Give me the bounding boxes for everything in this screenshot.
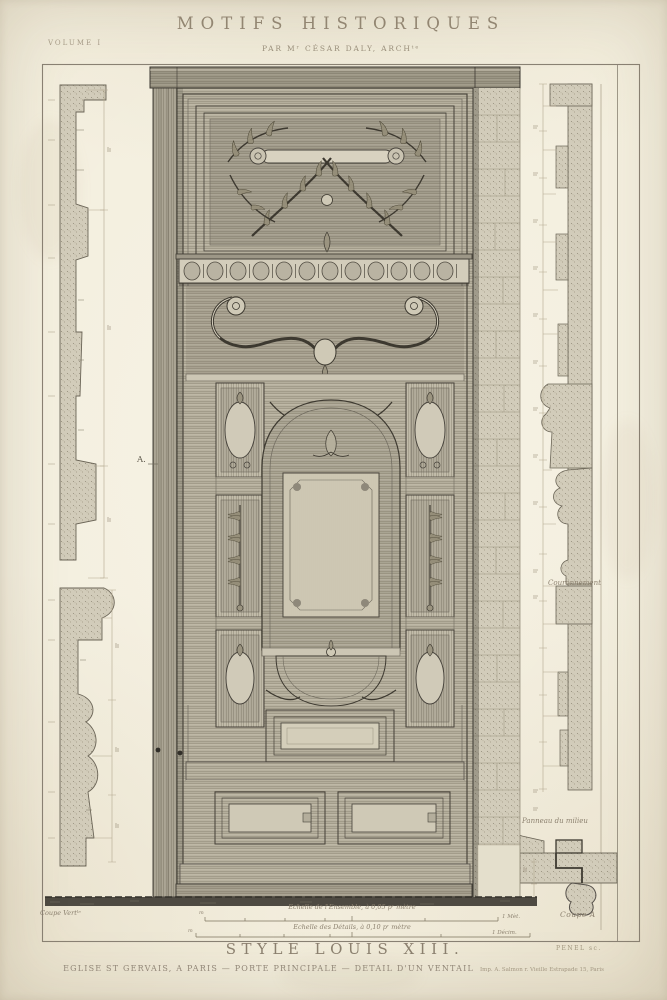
- right-dimension-figures: [533, 126, 538, 810]
- door-plinth: [176, 864, 472, 897]
- style-title: STYLE LOUIS XIII.: [226, 942, 464, 957]
- lower-horizontal-panel: [266, 710, 394, 762]
- left-tick-column: [48, 100, 55, 838]
- scale-ensemble-label: Echelle de l'Ensemble, à 0,05 pʳ mètre: [288, 904, 415, 911]
- right-ornament-column: [406, 383, 454, 727]
- plate-engraving: [0, 0, 667, 1000]
- central-arched-panel: [262, 400, 400, 650]
- scale-details-label: Echelle des Détails, à 0,10 pʳ mètre: [293, 924, 411, 931]
- coupe-a-label: Coupe A: [560, 911, 596, 919]
- left-ornament-column: [216, 383, 264, 727]
- right-section-profile: [533, 84, 601, 930]
- plate-caption-row: EGLISE ST GERVAIS, A PARIS — PORTE PRINC…: [0, 964, 667, 973]
- left-dimension-figures: [108, 147, 118, 828]
- egg-and-dart-shelf: [176, 254, 472, 286]
- lock-rail: [186, 762, 464, 780]
- coupe-verticale-label: Coupe Vertˡᵉ: [40, 910, 81, 917]
- scale-ensemble-mark: 1 Mèt.: [502, 915, 520, 921]
- top-carved-panel: [196, 106, 454, 258]
- middle-field: [186, 381, 464, 727]
- engraved-plate-page: { "colors": { "paper": "#f3eedd", "ink":…: [0, 0, 667, 1000]
- plate-title: MOTIFS HISTORIQUES: [177, 16, 505, 33]
- plate-imprint: Imp. A. Salmon r. Vieille Estrapade 15, …: [480, 967, 604, 973]
- scale-ensemble-left-mark: m: [199, 911, 204, 916]
- scroll-frieze: [186, 286, 464, 381]
- left-section-profile: [48, 85, 118, 866]
- volume-label: VOLUME I: [48, 40, 102, 47]
- door-engraving: [45, 67, 537, 906]
- bottom-panels: [186, 780, 464, 864]
- scale-details-mark: 1 Décim.: [492, 931, 517, 937]
- couronnement-label: Couronnement: [548, 580, 601, 587]
- plate-caption: EGLISE ST GERVAIS, A PARIS — PORTE PRINC…: [63, 964, 474, 973]
- marker-a-label: A.: [137, 456, 146, 465]
- engraver-credit: PENEL sc.: [556, 946, 602, 952]
- scale-details-left-mark: m: [188, 929, 193, 934]
- plate-byline: PAR Mʳ CÉSAR DALY, ARCHᵗᵉ: [262, 45, 420, 53]
- panneau-milieu-label: Panneau du milieu: [522, 818, 588, 825]
- stone-jamb: [473, 88, 520, 897]
